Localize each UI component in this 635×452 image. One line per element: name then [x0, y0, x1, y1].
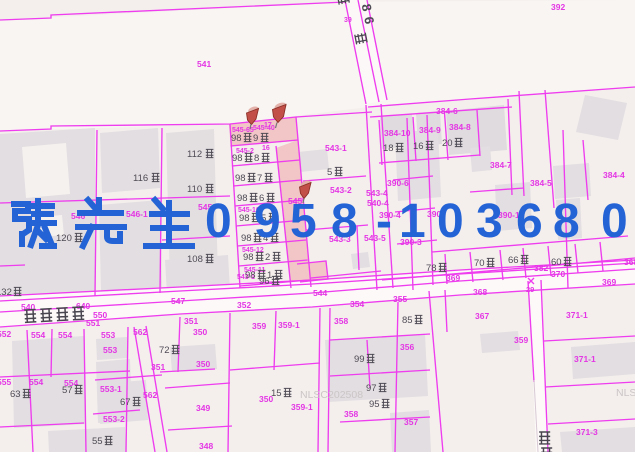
svg-text:543-2: 543-2 — [330, 185, 352, 195]
svg-text:349: 349 — [196, 403, 210, 413]
svg-text:546-1: 546-1 — [126, 209, 148, 219]
svg-text:354: 354 — [350, 299, 364, 309]
svg-text:553-1: 553-1 — [100, 384, 122, 394]
svg-text:359-1: 359-1 — [291, 402, 313, 412]
svg-text:110: 110 — [187, 184, 202, 195]
svg-text:355: 355 — [393, 294, 407, 304]
svg-text:382: 382 — [534, 263, 548, 273]
svg-text:112: 112 — [187, 149, 202, 160]
svg-text:63: 63 — [10, 389, 21, 400]
svg-text:369: 369 — [446, 273, 460, 283]
svg-text:9: 9 — [253, 133, 258, 144]
svg-text:98: 98 — [241, 233, 252, 244]
svg-text:552: 552 — [0, 329, 11, 339]
svg-text:29: 29 — [526, 285, 534, 294]
svg-text:350: 350 — [196, 359, 210, 369]
svg-text:20: 20 — [442, 138, 453, 149]
svg-text:553-2: 553-2 — [103, 414, 125, 424]
svg-text:96: 96 — [259, 276, 270, 287]
svg-text:543-1: 543-1 — [325, 143, 347, 153]
svg-text:555: 555 — [0, 377, 11, 387]
svg-text:17: 17 — [264, 122, 272, 129]
svg-text:39: 39 — [344, 17, 352, 24]
svg-text:554: 554 — [31, 330, 45, 340]
svg-text:66: 66 — [508, 255, 519, 266]
svg-text:98: 98 — [243, 252, 254, 263]
svg-text:351: 351 — [151, 362, 165, 372]
svg-text:390-6: 390-6 — [387, 178, 409, 188]
svg-text:18: 18 — [383, 143, 394, 154]
svg-text:7: 7 — [257, 173, 262, 184]
svg-text:NLS: NLS — [616, 387, 635, 399]
svg-text:132: 132 — [0, 287, 12, 298]
svg-text:369: 369 — [602, 277, 616, 287]
svg-text:98: 98 — [235, 173, 246, 184]
svg-text:359: 359 — [252, 321, 266, 331]
svg-text:367: 367 — [475, 311, 489, 321]
svg-text:352: 352 — [237, 300, 251, 310]
svg-text:357: 357 — [404, 417, 418, 427]
svg-text:98: 98 — [237, 193, 248, 204]
svg-text:384-5: 384-5 — [530, 178, 552, 188]
svg-text:78: 78 — [426, 263, 437, 274]
svg-text:15: 15 — [271, 388, 282, 399]
svg-text:384-6: 384-6 — [436, 106, 458, 116]
svg-text:98: 98 — [231, 133, 242, 144]
svg-text:348: 348 — [199, 441, 213, 451]
svg-text:553: 553 — [103, 345, 117, 355]
svg-text:2: 2 — [265, 252, 270, 263]
svg-text:NLSC202508: NLSC202508 — [300, 389, 363, 401]
svg-text:370: 370 — [551, 269, 565, 279]
svg-text:99: 99 — [354, 354, 365, 365]
svg-text:16: 16 — [413, 141, 424, 152]
svg-text:384-9: 384-9 — [419, 125, 441, 135]
svg-text:544: 544 — [313, 288, 327, 298]
svg-text:98: 98 — [232, 153, 243, 164]
svg-text:358: 358 — [344, 409, 358, 419]
svg-text:392: 392 — [551, 2, 565, 12]
svg-text:85: 85 — [402, 315, 413, 326]
svg-text:384-4: 384-4 — [603, 170, 625, 180]
svg-text:358: 358 — [334, 316, 348, 326]
svg-text:5: 5 — [327, 167, 332, 178]
svg-text:57: 57 — [62, 385, 73, 396]
svg-text:541: 541 — [197, 59, 211, 69]
svg-text:0958-103680: 0958-103680 — [205, 195, 628, 248]
svg-text:547: 547 — [171, 296, 185, 306]
svg-text:554: 554 — [29, 377, 43, 387]
svg-text:359: 359 — [514, 335, 528, 345]
svg-text:350: 350 — [193, 327, 207, 337]
svg-text:356: 356 — [400, 342, 414, 352]
svg-text:120: 120 — [56, 233, 72, 244]
svg-text:55: 55 — [92, 436, 103, 447]
svg-text:371-1: 371-1 — [574, 354, 596, 364]
svg-text:70: 70 — [474, 258, 485, 269]
svg-text:97: 97 — [366, 383, 377, 394]
svg-text:371-3: 371-3 — [576, 427, 598, 437]
svg-text:384-7: 384-7 — [490, 160, 512, 170]
svg-text:16: 16 — [262, 145, 270, 152]
svg-text:98: 98 — [239, 213, 250, 224]
svg-text:384-8: 384-8 — [449, 122, 471, 132]
svg-text:359-1: 359-1 — [278, 320, 300, 330]
svg-text:553: 553 — [101, 330, 115, 340]
svg-text:351: 351 — [184, 316, 198, 326]
svg-text:95: 95 — [369, 399, 380, 410]
svg-text:98: 98 — [245, 270, 256, 281]
svg-text:72: 72 — [159, 345, 170, 356]
svg-text:60: 60 — [551, 257, 562, 268]
svg-text:368: 368 — [473, 287, 487, 297]
svg-text:554: 554 — [58, 330, 72, 340]
svg-text:640: 640 — [76, 301, 90, 311]
svg-text:368: 368 — [624, 257, 635, 267]
svg-text:116: 116 — [133, 173, 148, 184]
svg-text:562: 562 — [133, 327, 147, 337]
svg-text:562: 562 — [143, 390, 157, 400]
svg-text:551: 551 — [86, 318, 100, 328]
svg-text:384-10: 384-10 — [384, 128, 411, 138]
svg-text:8: 8 — [254, 153, 259, 164]
svg-text:108: 108 — [187, 254, 203, 265]
svg-text:67: 67 — [120, 397, 131, 408]
svg-text:371-1: 371-1 — [566, 310, 588, 320]
